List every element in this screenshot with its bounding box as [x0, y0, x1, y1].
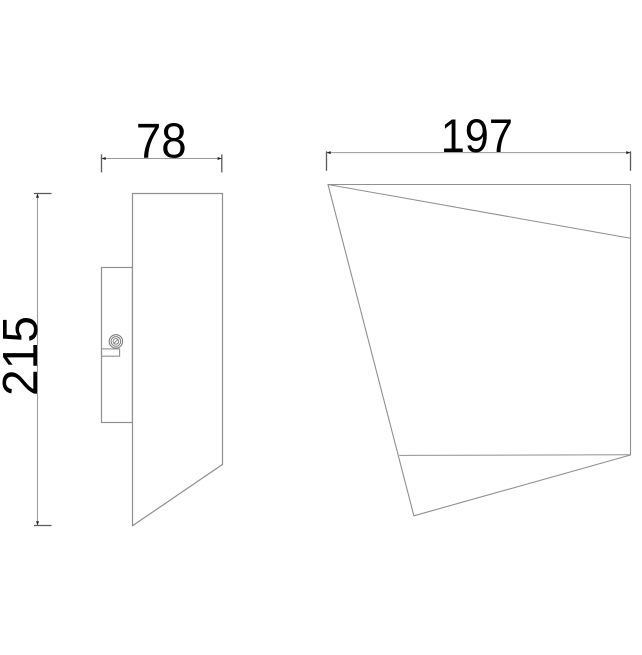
- svg-text:197: 197: [441, 109, 513, 162]
- svg-text:78: 78: [136, 114, 187, 168]
- svg-text:215: 215: [0, 316, 48, 396]
